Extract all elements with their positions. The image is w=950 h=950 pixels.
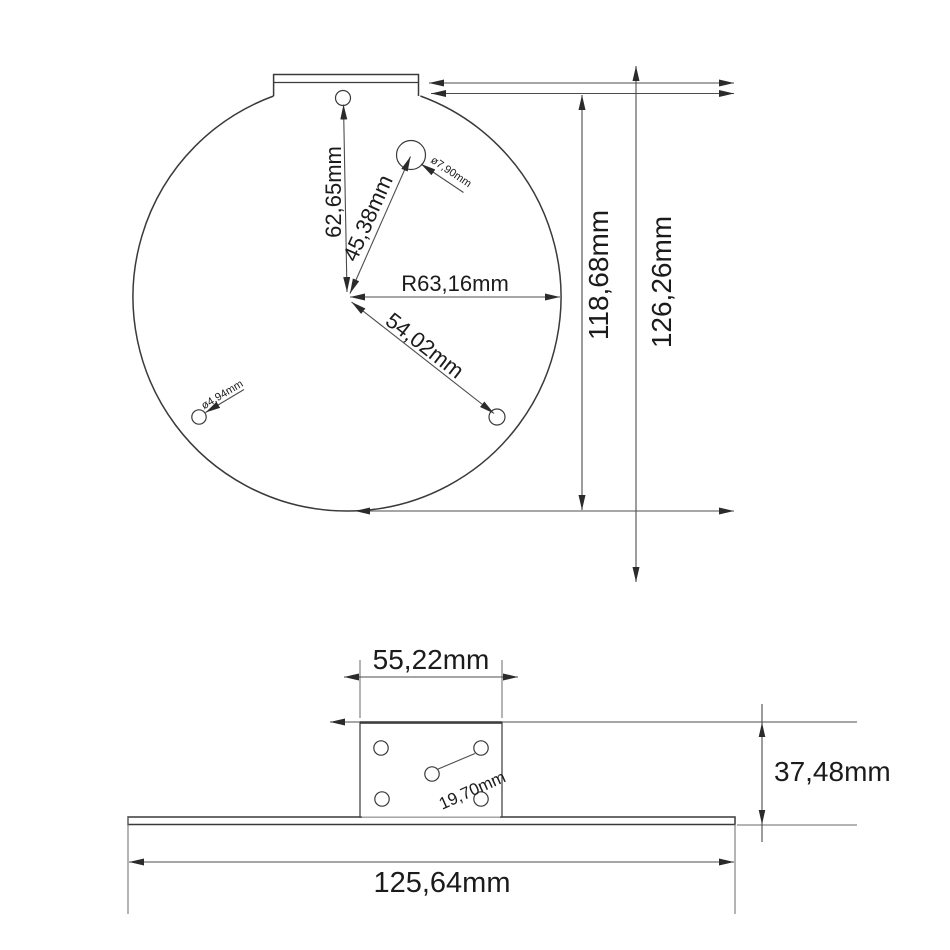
technical-drawing-page: 62,65mm 45,38mm R63,16mm 54,02mm ø7,90mm… bbox=[0, 0, 950, 950]
post-hole-bottom-left bbox=[375, 792, 389, 806]
dim-126-26-label: 126,26mm bbox=[646, 216, 677, 348]
disc-outline bbox=[133, 96, 561, 511]
hole-lower-left bbox=[192, 410, 206, 424]
dim-37-48-arrow-up bbox=[759, 723, 766, 738]
dim-125-64-label: 125,64mm bbox=[373, 867, 510, 899]
hole-top bbox=[336, 91, 351, 106]
dim-37-48-arrow-down bbox=[759, 810, 766, 825]
dim-118-68-label: 118,68mm bbox=[583, 210, 614, 340]
top-view-disc: 62,65mm 45,38mm R63,16mm 54,02mm ø7,90mm… bbox=[133, 66, 734, 582]
side-view-bracket: 19,70mm 55,22mm 37,48mm 125,64mm bbox=[128, 644, 891, 914]
dim-r63-16-label: R63,16mm bbox=[401, 271, 509, 296]
hole-upper-right bbox=[397, 141, 426, 170]
dim-37-48-label: 37,48mm bbox=[774, 756, 891, 787]
dim-55-22-label: 55,22mm bbox=[373, 644, 490, 675]
base-plate-outline bbox=[128, 817, 735, 825]
post-hole-top-right bbox=[474, 741, 488, 755]
post-hole-top-left bbox=[374, 741, 388, 755]
dim-62-65-label: 62,65mm bbox=[321, 146, 346, 238]
technical-drawing-canvas: 62,65mm 45,38mm R63,16mm 54,02mm ø7,90mm… bbox=[0, 0, 950, 950]
